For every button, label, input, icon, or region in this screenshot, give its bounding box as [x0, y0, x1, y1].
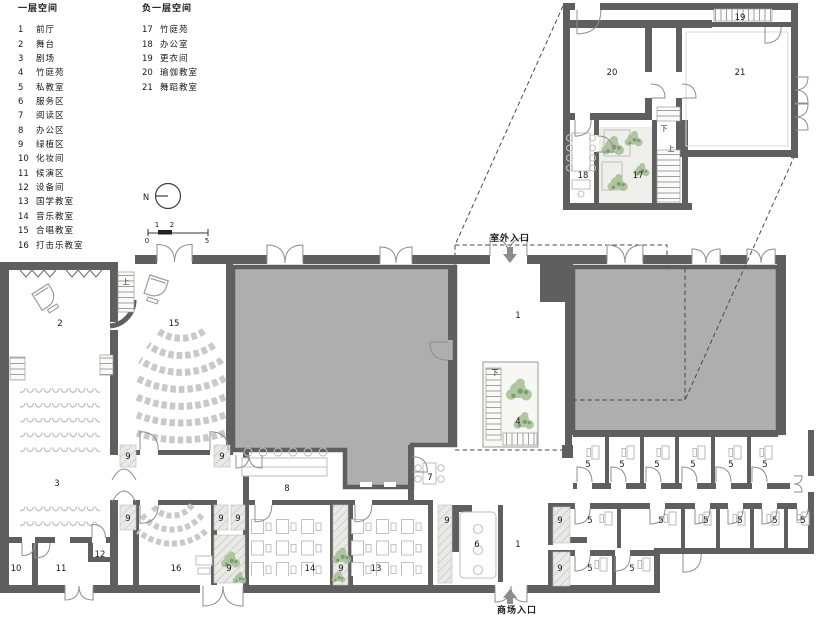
room-label-waiting: 11 — [56, 564, 67, 574]
scale-tick: 1 — [155, 221, 159, 229]
theater-seats — [20, 500, 100, 530]
grand-piano — [32, 284, 62, 316]
room-label-green: 9 — [125, 514, 130, 524]
room-label-green: 9 — [125, 452, 130, 462]
room-label-private: 5 — [619, 460, 624, 470]
room-label-yoga: 20 — [607, 68, 618, 78]
stair-up-label: 上 — [123, 277, 130, 286]
guoxue-classroom-desks — [351, 514, 424, 576]
room-label-private: 5 — [772, 516, 777, 526]
room-label-makeup: 10 — [11, 564, 22, 574]
room-label-bamboo-court: 4 — [515, 417, 520, 427]
room-label-green: 9 — [557, 564, 562, 574]
floor-plan-canvas: N 1 2 0 5 1 1 2 3 4 6 7 8 10 11 12 13 — [0, 0, 818, 621]
room-label-private: 5 — [585, 460, 590, 470]
scale-tick: 5 — [205, 237, 209, 245]
room-label-office-area: 8 — [284, 484, 289, 494]
stair-down-label: 下 — [492, 369, 499, 377]
room-label-private: 5 — [762, 460, 767, 470]
inset-stairs — [657, 150, 680, 202]
scale-bar: 1 2 0 5 — [145, 221, 209, 245]
room-label-front-hall: 1 — [515, 311, 520, 321]
room-label-private: 5 — [587, 516, 592, 526]
room-label-private: 5 — [658, 516, 663, 526]
north-label: N — [143, 193, 149, 203]
room-label-private: 5 — [703, 516, 708, 526]
room-label-green: 9 — [557, 516, 562, 526]
room-label-dance: 21 — [735, 68, 746, 78]
room-label-changing: 19 — [735, 13, 746, 23]
outdoor-entrance-label: 室外入口 — [490, 232, 530, 244]
stair-down-label: 下 — [661, 125, 668, 133]
room-label-green: 9 — [444, 516, 449, 526]
room-label-private: 5 — [728, 460, 733, 470]
conference-table — [567, 133, 596, 197]
room-label-private: 5 — [629, 564, 634, 574]
room-label-green: 9 — [338, 564, 343, 574]
room-label-green: 9 — [235, 514, 240, 524]
north-compass-icon: N — [143, 184, 181, 209]
room-label-green: 9 — [219, 452, 224, 462]
inset-basement-plan — [563, 3, 798, 210]
theater-seats — [20, 382, 100, 458]
room-label-service: 6 — [474, 540, 479, 550]
room-label-stage: 2 — [57, 319, 62, 329]
outdoor-entrance-arrow-icon — [503, 247, 517, 263]
room-label-b1-office: 18 — [578, 171, 589, 181]
room-label-chorus: 15 — [169, 319, 180, 329]
room-label-private: 5 — [737, 516, 742, 526]
room-label-front-hall: 1 — [515, 540, 520, 550]
room-label-green: 9 — [218, 514, 223, 524]
floor-plan-page: 一层空间 1前厅 2舞台 3剧场 4竹庭苑 5私教室 6服务区 7阅读区 8办公… — [0, 0, 818, 621]
room-label-private: 5 — [800, 516, 805, 526]
room-label-private: 5 — [654, 460, 659, 470]
chorus-seat-rows — [137, 331, 225, 440]
grand-piano — [142, 275, 168, 305]
room-label-equipment: 12 — [95, 550, 106, 560]
scale-tick: 0 — [145, 237, 149, 245]
room-label-private: 5 — [587, 564, 592, 574]
room-label-reading: 7 — [427, 473, 432, 483]
room-label-music: 14 — [305, 564, 316, 574]
room-label-private: 5 — [690, 460, 695, 470]
scale-tick: 2 — [170, 221, 174, 229]
stair-up-label: 上 — [668, 144, 675, 153]
room-label-theater: 3 — [54, 479, 59, 489]
inset-stairs-upper — [657, 107, 680, 121]
room-label-percussion: 16 — [171, 564, 182, 574]
room-label-b1-bamboo: 17 — [633, 171, 644, 181]
room-label-guoxue: 13 — [371, 564, 382, 574]
mall-entrance-arrow-icon — [503, 589, 517, 604]
mall-entrance-label: 商场入口 — [497, 604, 537, 616]
room-label-green: 9 — [226, 564, 231, 574]
